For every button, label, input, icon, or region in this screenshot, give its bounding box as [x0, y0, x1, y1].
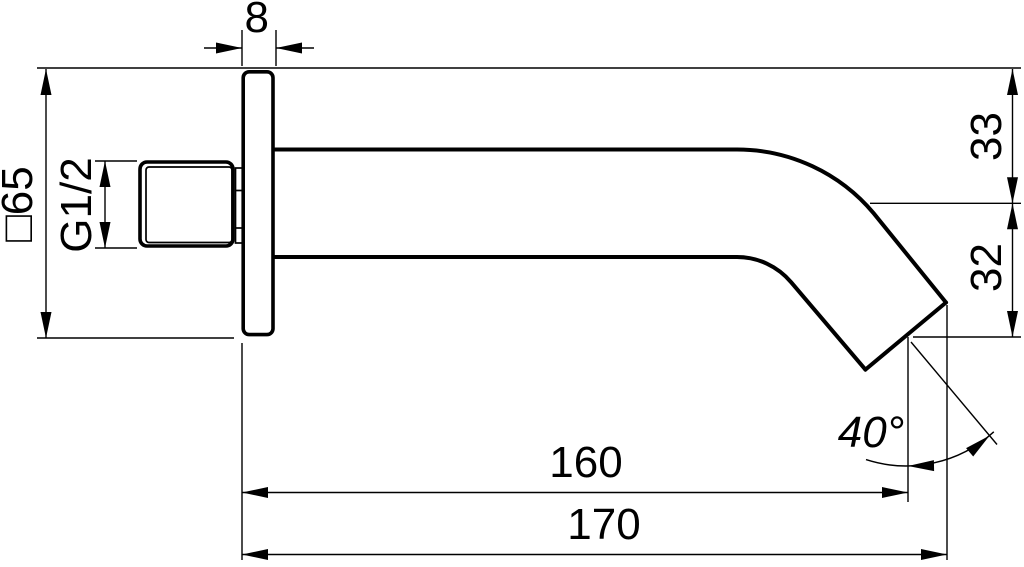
- arrowhead: [908, 460, 934, 471]
- spout-top-edge: [275, 150, 946, 303]
- arrowhead: [242, 487, 268, 498]
- dimension-label-lower-offset: 32: [962, 243, 1011, 292]
- dimension-thread-size: G1/2: [52, 157, 111, 252]
- spout-bottom-edge: [275, 257, 865, 370]
- drawing-canvas: 8 □65 G1/2 33 32 160 170: [0, 0, 1024, 567]
- dimension-spout-reach: 160: [242, 438, 908, 498]
- arrowhead: [242, 549, 268, 560]
- arrowhead: [921, 549, 947, 560]
- arrowhead: [216, 43, 242, 54]
- wall-flange: [243, 72, 273, 335]
- spout-outlet-face: [865, 303, 946, 370]
- arrowhead: [41, 312, 52, 338]
- dimension-label-thread-size: G1/2: [52, 157, 101, 252]
- dimension-label-overall-reach: 170: [567, 500, 640, 549]
- thread-nut-chamfer: [146, 167, 232, 243]
- arrowhead: [100, 161, 111, 187]
- dimension-flange-square: □65: [0, 69, 52, 338]
- arrowhead: [966, 436, 990, 457]
- dimension-outlet-angle: 40°: [838, 342, 997, 471]
- arrowhead: [100, 222, 111, 248]
- extension-lines: [37, 30, 1021, 560]
- arrowhead: [882, 487, 908, 498]
- dimension-label-spout-reach: 160: [549, 438, 622, 487]
- dimension-label-flange-square: □65: [0, 166, 42, 242]
- dimension-lower-offset: 32: [962, 203, 1018, 337]
- arrowhead: [41, 69, 52, 95]
- spout-part: [140, 72, 946, 370]
- dimension-label-flange-thickness: 8: [244, 0, 268, 42]
- dimension-flange-thickness: 8: [204, 0, 314, 54]
- thread-nut: [140, 162, 233, 246]
- angle-reference-line: [911, 342, 997, 445]
- arrowhead: [276, 43, 302, 54]
- arrowhead: [1007, 311, 1018, 337]
- dimension-label-outlet-angle: 40°: [838, 408, 905, 457]
- arrowhead: [1007, 203, 1018, 229]
- arrowhead: [1007, 69, 1018, 95]
- dimension-label-upper-offset: 33: [962, 112, 1011, 161]
- arrowhead: [1007, 177, 1018, 203]
- technical-drawing-bath-spout: 8 □65 G1/2 33 32 160 170: [0, 0, 1024, 567]
- dimension-overall-reach: 170: [242, 500, 947, 560]
